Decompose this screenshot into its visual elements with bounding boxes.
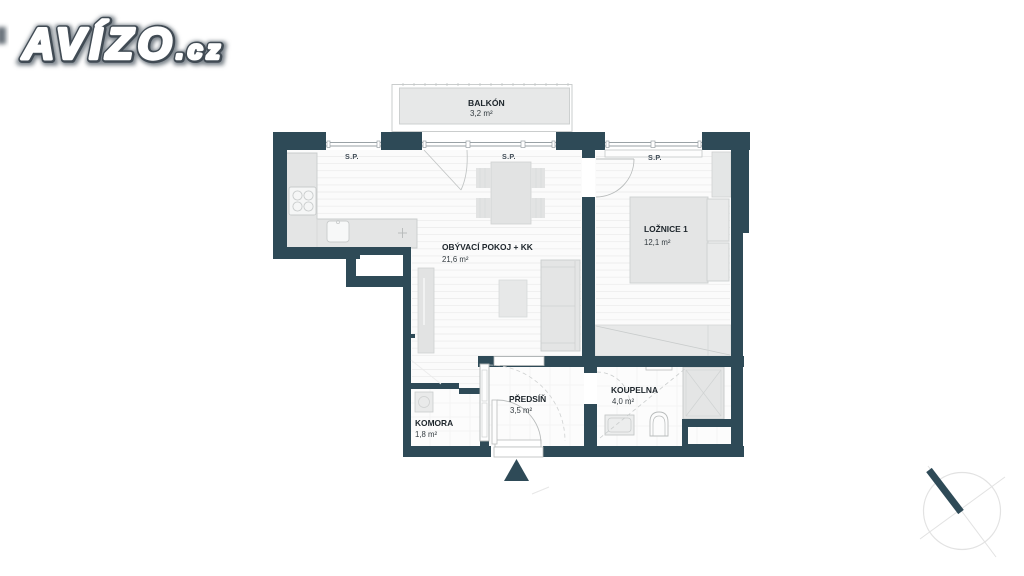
svg-text:S.P.: S.P. (502, 152, 516, 161)
svg-text:3,2 m²: 3,2 m² (470, 109, 493, 118)
svg-text:12,1 m²: 12,1 m² (644, 238, 671, 247)
svg-text:BALKÓN: BALKÓN (468, 97, 505, 108)
svg-text:LOŽNICE 1: LOŽNICE 1 (644, 223, 688, 234)
svg-text:4,0 m²: 4,0 m² (612, 397, 634, 406)
svg-text:S.P.: S.P. (648, 153, 662, 162)
svg-text:1,8 m²: 1,8 m² (415, 430, 437, 439)
svg-text:KOMORA: KOMORA (415, 418, 453, 428)
svg-text:3,5 m²: 3,5 m² (510, 406, 532, 415)
svg-text:OBÝVACÍ POKOJ + KK: OBÝVACÍ POKOJ + KK (442, 241, 533, 252)
svg-text:21,6 m²: 21,6 m² (442, 255, 469, 264)
svg-text:S.P.: S.P. (345, 152, 359, 161)
svg-text:PŘEDSÍŇ: PŘEDSÍŇ (509, 393, 546, 404)
svg-text:KOUPELNA: KOUPELNA (611, 385, 658, 395)
